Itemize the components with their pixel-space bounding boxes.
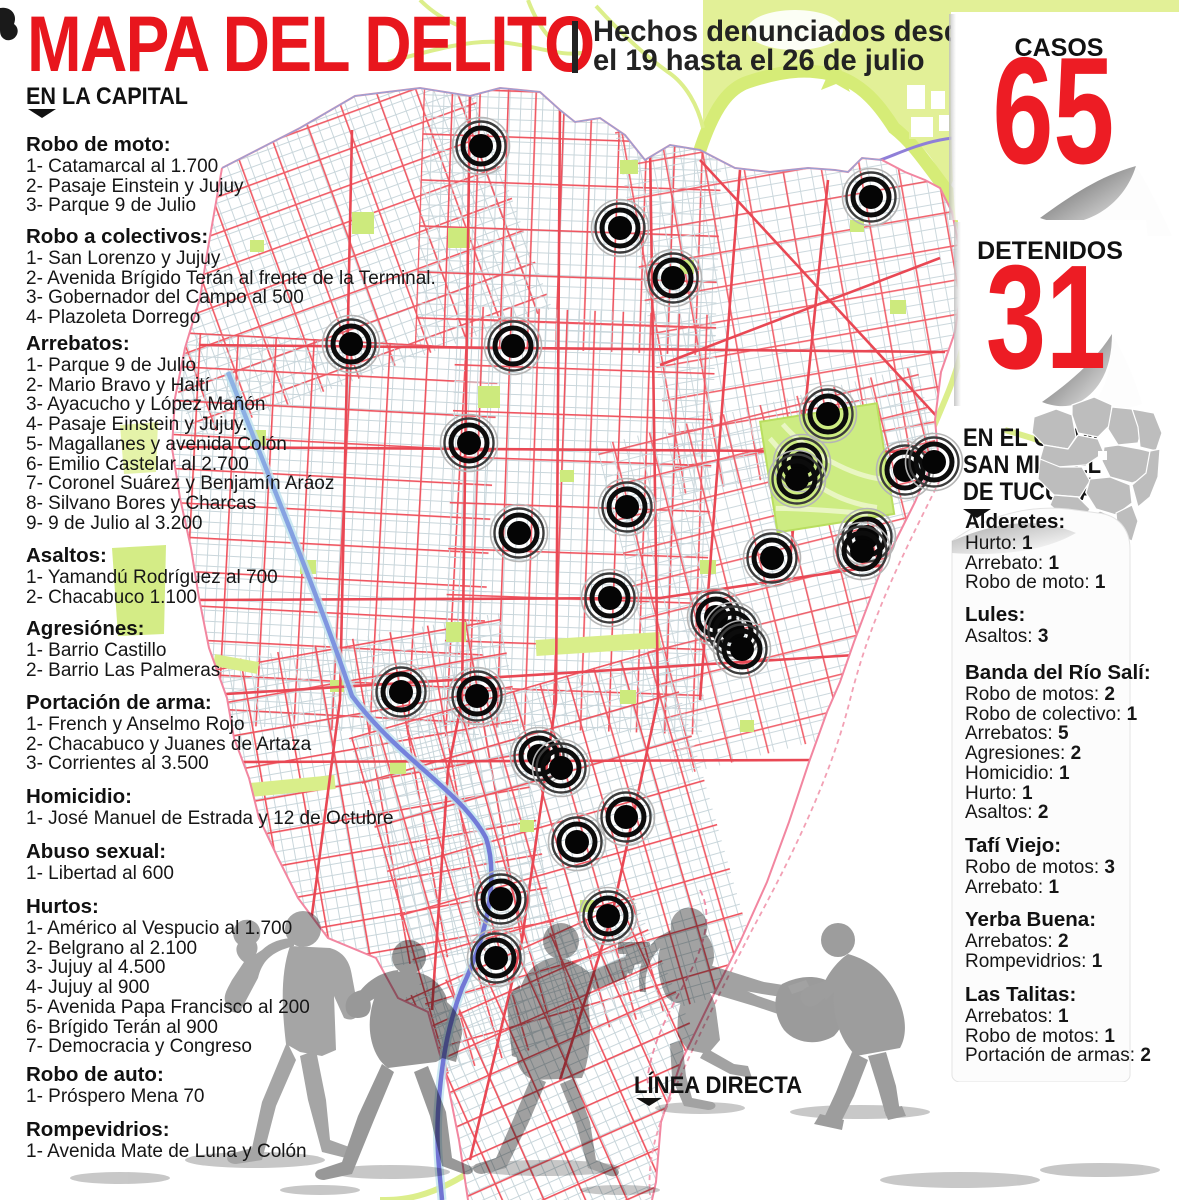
svg-text:65: 65 [992, 26, 1114, 196]
svg-text:31: 31 [986, 235, 1106, 399]
